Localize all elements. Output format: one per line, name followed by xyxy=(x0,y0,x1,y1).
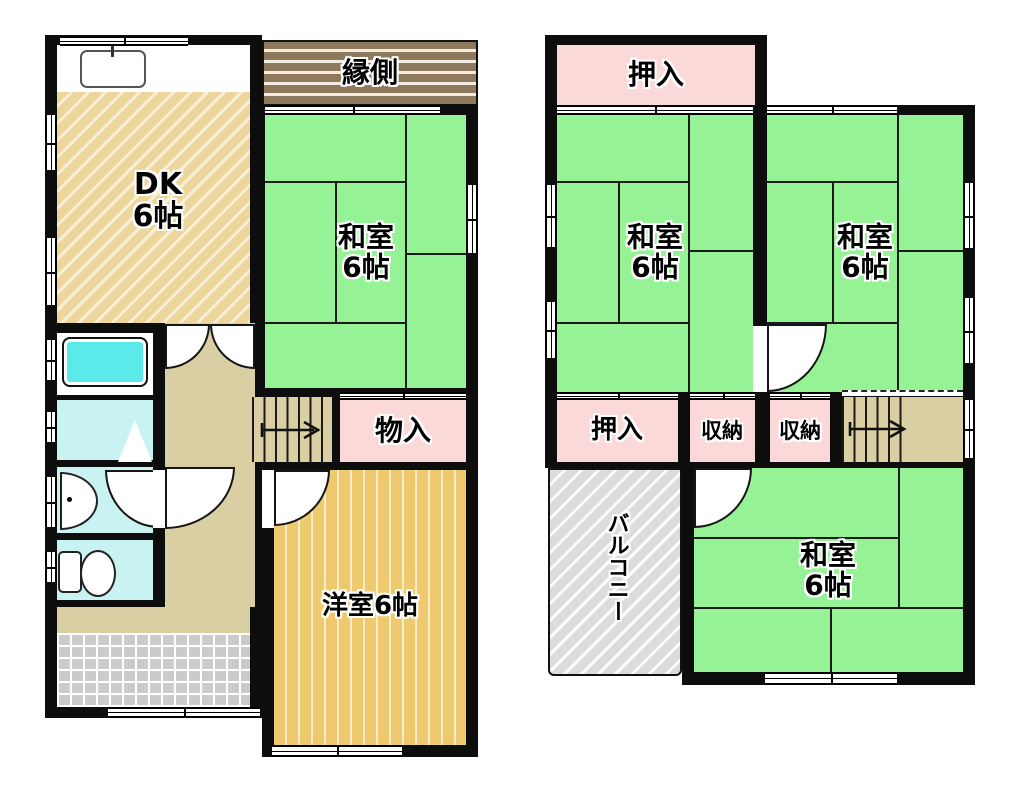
shuno-b-sliding-door xyxy=(770,392,830,400)
dk-left-window-1 xyxy=(45,115,57,170)
engawa-label: 縁側 xyxy=(342,58,398,88)
washbasin-faucet-icon xyxy=(67,497,72,502)
stairs-2f-up-arrow-icon xyxy=(846,418,916,440)
washroom-window xyxy=(45,412,57,442)
toilet-tank-icon xyxy=(58,551,82,593)
bathtub-icon xyxy=(62,337,148,387)
floor2-left-window-2 xyxy=(545,302,557,358)
oshiire-top-label: 押入 xyxy=(628,60,684,90)
shuno-a-label: 収納 xyxy=(701,420,743,442)
oshiire-top-sliding-door xyxy=(557,105,753,115)
bath-window xyxy=(45,340,57,380)
stairs-2f-dashed-line xyxy=(842,390,963,396)
yoshitsu-doorway-gap xyxy=(262,470,274,528)
washitsu-1f-top-window xyxy=(265,105,440,115)
shuno-a-sliding-door xyxy=(690,392,755,400)
toilet-bowl-icon xyxy=(80,550,116,597)
washitsu-2f-bottom-label: 和室 6帖 xyxy=(800,540,856,599)
washitsu-2f-left-label: 和室 6帖 xyxy=(627,222,683,281)
washitsu-1f-right-window xyxy=(466,185,478,253)
floor2-right-window-1 xyxy=(963,183,975,248)
hallway-lower xyxy=(57,607,250,633)
dk-name: DK xyxy=(133,169,184,201)
monoiri-label: 物入 xyxy=(375,416,431,446)
powder-window xyxy=(45,477,57,527)
oshiire-mid-label: 押入 xyxy=(591,417,643,445)
stairs-up-arrow-icon xyxy=(258,419,328,441)
oshiire-mid-sliding-door xyxy=(557,392,678,400)
yoshitsu-label: 洋室6帖 xyxy=(322,593,418,621)
monoiri-sliding-door xyxy=(340,392,466,400)
kitchen-top-window xyxy=(60,36,188,46)
yoshitsu-bottom-window xyxy=(272,745,402,757)
toilet-window xyxy=(45,552,57,582)
floor2-right-window-2 xyxy=(963,298,975,363)
dk-label: DK 6帖 xyxy=(133,169,184,233)
dk-left-window-2 xyxy=(45,238,57,305)
shuno-b-label: 収納 xyxy=(779,420,821,442)
entrance-tiles xyxy=(57,633,250,707)
dk-size: 6帖 xyxy=(133,201,184,233)
floor2-right-window-3 xyxy=(963,400,975,458)
entrance-sliding-door xyxy=(108,707,260,718)
washitsu-1f-label: 和室 6帖 xyxy=(338,222,394,281)
balcony-label: バルコニー xyxy=(604,512,627,622)
washitsu-2f-right-label: 和室 6帖 xyxy=(837,222,893,281)
floor2-left-window-1 xyxy=(545,185,557,247)
washitsu-2f-doorway-gap xyxy=(753,326,767,392)
floor2-bottom-window xyxy=(765,672,897,685)
washitsu-2f-right-top-window xyxy=(767,105,897,115)
floor-plan: 縁側 DK 6帖 和室 6帖 物入 洋室6帖 押入 和室 6帖 和室 6帖 押入… xyxy=(0,0,1024,790)
powder-doorway-gap xyxy=(153,470,165,528)
